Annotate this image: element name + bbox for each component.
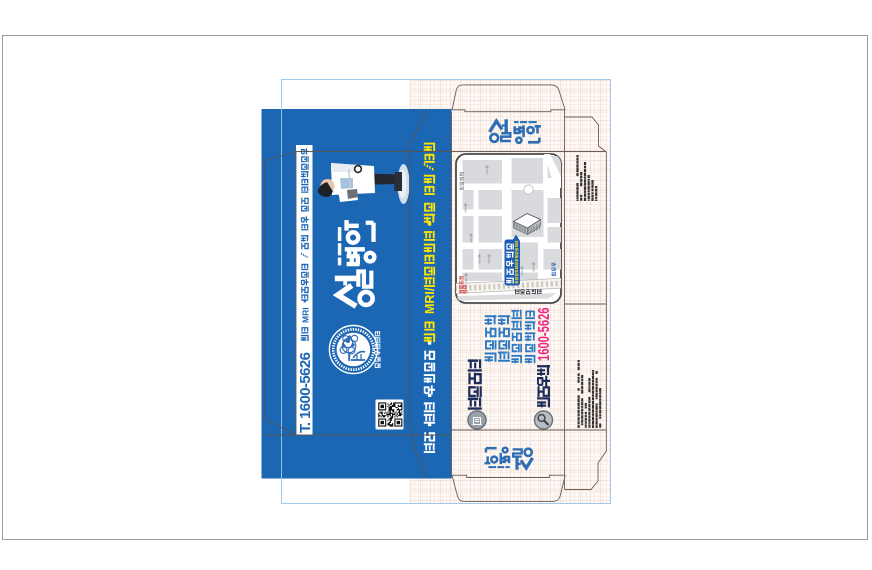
svg-text:MRI/: MRI/ <box>423 287 437 314</box>
svg-text:T. 1600-5626: T. 1600-5626 <box>297 352 314 433</box>
svg-text:1600-5626: 1600-5626 <box>534 307 553 361</box>
svg-text:MRI: MRI <box>300 307 310 323</box>
